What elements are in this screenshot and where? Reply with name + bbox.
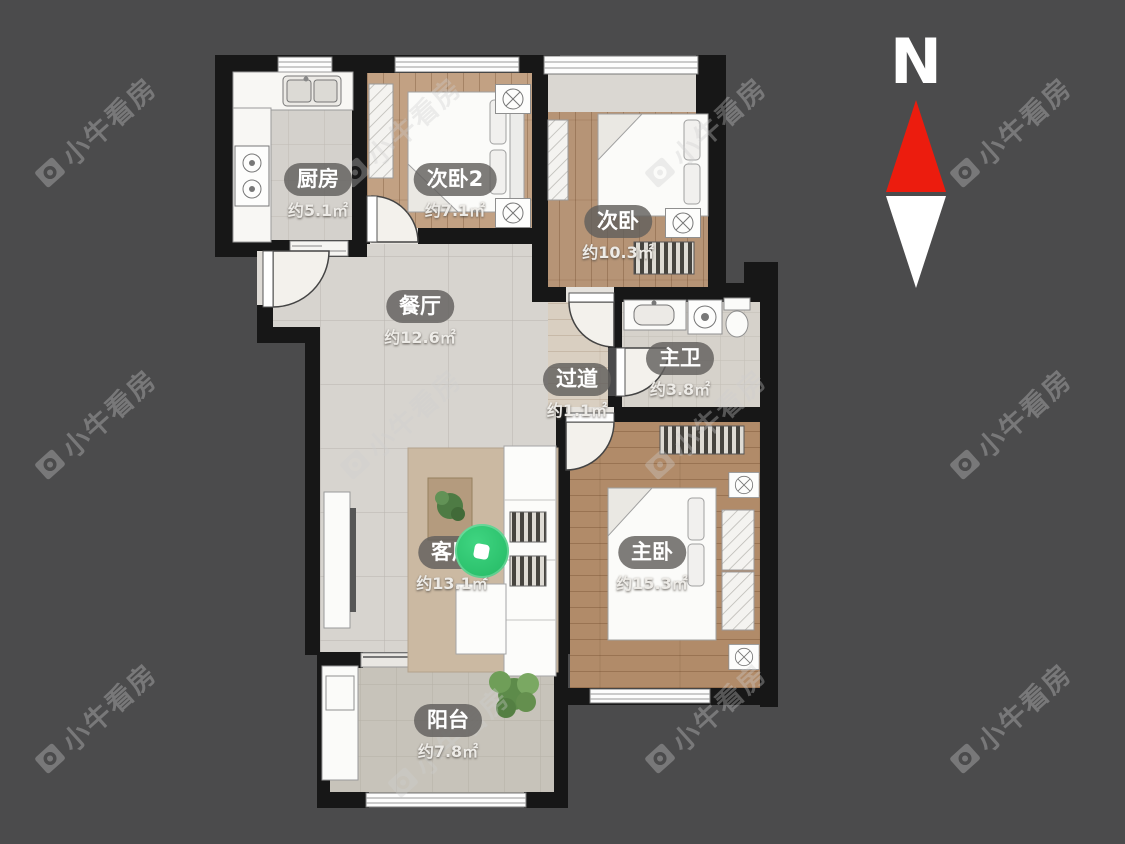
- bed: [598, 114, 708, 216]
- stove: [235, 146, 269, 206]
- wardrobe: [548, 120, 568, 200]
- bedroom-bay-window: [544, 56, 698, 74]
- armchair: [510, 556, 546, 586]
- wardrobe: [369, 84, 393, 178]
- floorplan-canvas: 小牛看房 小牛看房 小牛看房 小牛看房: [0, 0, 1125, 844]
- master-bedroom-window: [590, 689, 710, 703]
- tv-cabinet: [324, 492, 356, 628]
- north-arrow-icon: [885, 100, 947, 288]
- kitchen-sink: [283, 76, 341, 106]
- wardrobe: [722, 572, 754, 630]
- panorama-marker[interactable]: [455, 524, 509, 578]
- rug: [634, 242, 694, 274]
- bathroom-sink: [624, 300, 686, 330]
- washing-machine: [688, 300, 722, 334]
- toilet: [724, 298, 750, 337]
- balcony-window: [366, 793, 526, 807]
- north-indicator: N: [868, 30, 964, 292]
- bed: [608, 488, 716, 640]
- panorama-marker-icon: [473, 543, 490, 560]
- wardrobe: [722, 510, 754, 570]
- armchair: [510, 512, 546, 542]
- north-label: N: [868, 30, 964, 94]
- balcony-cabinet: [322, 666, 358, 780]
- rug: [660, 426, 744, 454]
- bedroom2-window: [395, 57, 519, 72]
- kitchen-window: [278, 57, 332, 72]
